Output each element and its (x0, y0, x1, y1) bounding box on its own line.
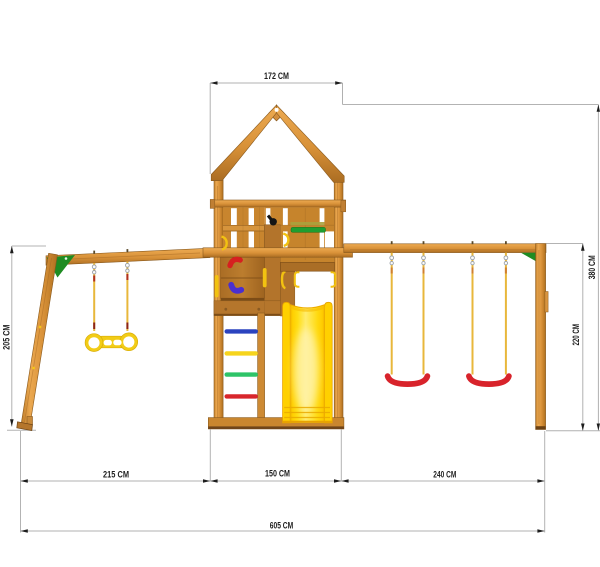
svg-text:205 CM: 205 CM (1, 325, 11, 350)
svg-text:220 CM: 220 CM (571, 324, 581, 346)
svg-text:150 CM: 150 CM (265, 469, 290, 479)
svg-text:605 CM: 605 CM (270, 521, 294, 531)
svg-text:215 CM: 215 CM (103, 470, 129, 480)
svg-text:240 CM: 240 CM (433, 470, 456, 480)
svg-text:172 CM: 172 CM (264, 71, 289, 81)
svg-text:380 CM: 380 CM (587, 255, 597, 279)
